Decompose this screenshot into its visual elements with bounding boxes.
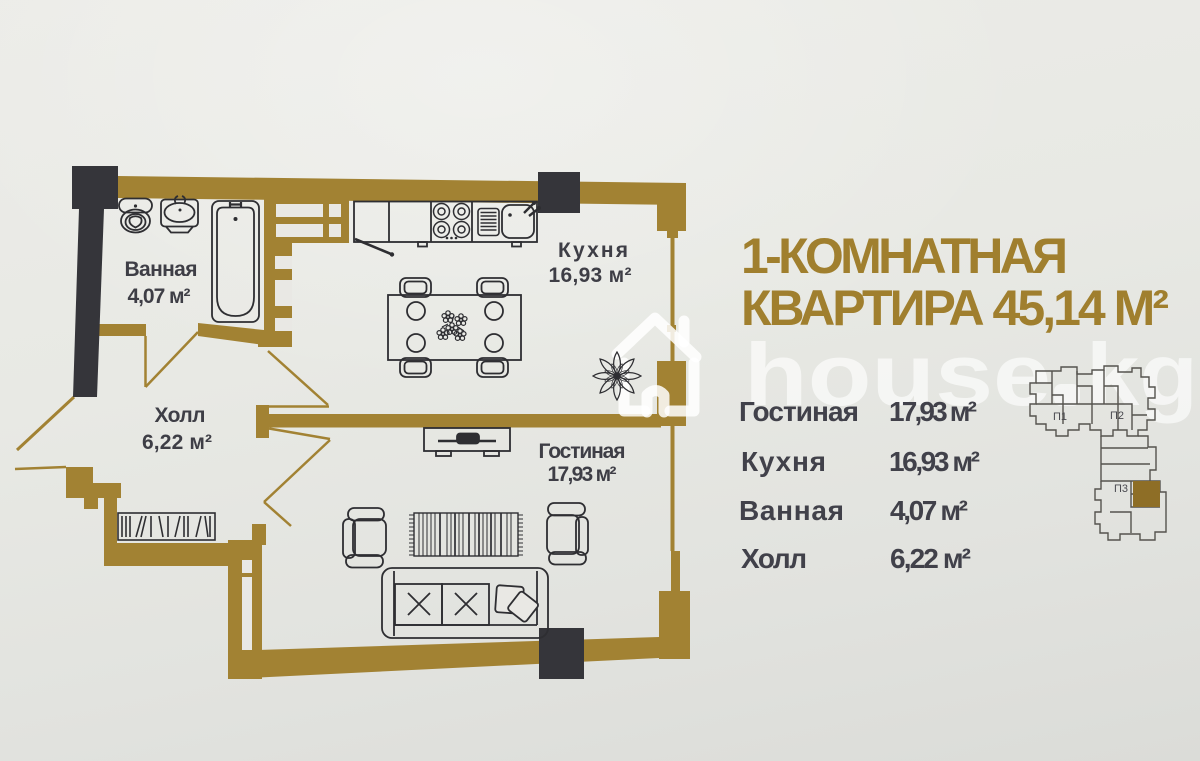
- svg-text:Холл: Холл: [741, 543, 807, 574]
- svg-text:6,22 м²: 6,22 м²: [890, 543, 971, 574]
- svg-text:Кухня: Кухня: [558, 239, 628, 262]
- svg-text:КВАРТИРА 45,14 М²: КВАРТИРА 45,14 М²: [741, 280, 1169, 336]
- svg-text:16,93 м²: 16,93 м²: [549, 264, 632, 287]
- svg-text:kg: kg: [1086, 326, 1198, 424]
- svg-text:17,93 м²: 17,93 м²: [889, 396, 977, 427]
- svg-text:П2: П2: [1110, 410, 1124, 422]
- svg-text:17,93 м²: 17,93 м²: [548, 463, 617, 486]
- svg-text:Кухня: Кухня: [741, 446, 826, 477]
- svg-text:Ванная: Ванная: [125, 258, 198, 281]
- svg-text:1-КОМНАТНАЯ: 1-КОМНАТНАЯ: [741, 228, 1068, 284]
- svg-text:16,93 м²: 16,93 м²: [889, 446, 980, 477]
- svg-text:4,07 м²: 4,07 м²: [890, 495, 968, 526]
- svg-text:Гостиная: Гостиная: [539, 440, 626, 463]
- svg-text:6,22 м²: 6,22 м²: [142, 431, 212, 454]
- svg-text:4,07 м²: 4,07 м²: [128, 285, 191, 308]
- svg-text:П1: П1: [1053, 411, 1067, 423]
- svg-text:Холл: Холл: [155, 404, 206, 427]
- svg-text:П3: П3: [1114, 483, 1128, 495]
- svg-text:Ванная: Ванная: [739, 495, 844, 526]
- svg-text:Гостиная: Гостиная: [739, 396, 859, 427]
